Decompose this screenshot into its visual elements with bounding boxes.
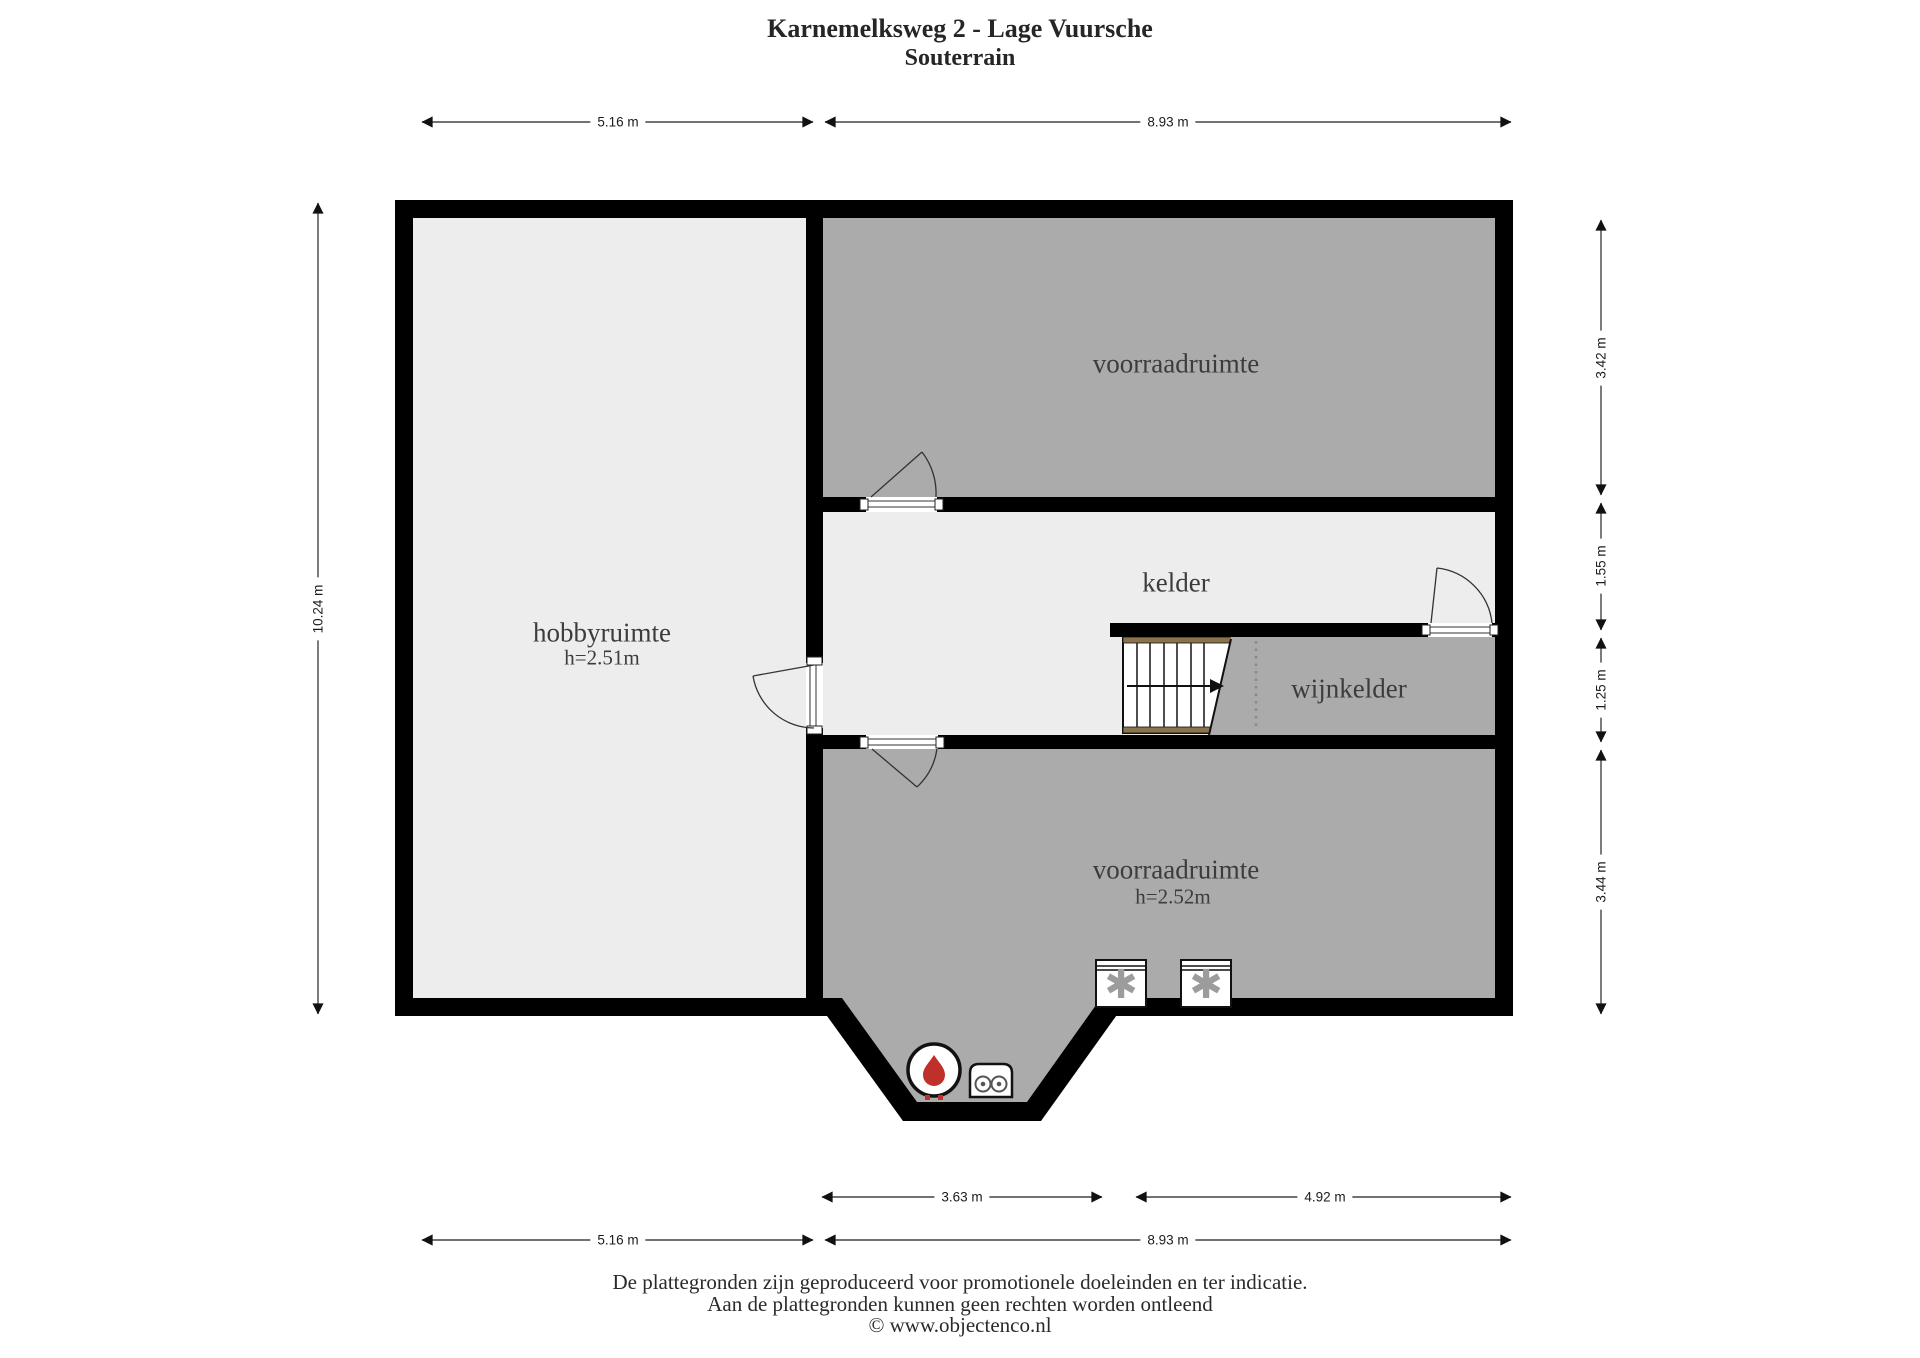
title-block: Karnemelksweg 2 - Lage Vuursche Souterra… (0, 14, 1920, 72)
room-hobbyruimte-floor (413, 218, 806, 998)
dim-right-2: 1.55 m (1593, 538, 1610, 593)
washer-icon: ✱ (1096, 960, 1146, 1008)
dim-left: 10.24 m (310, 578, 327, 641)
room-height-hobbyruimte: h=2.51m (564, 646, 639, 671)
footer-copyright: © www.objectenco.nl (0, 1315, 1920, 1337)
room-label-kelder: kelder (1142, 568, 1209, 599)
ventilation-unit-icon (970, 1064, 1012, 1097)
dim-bottom-outer-left: 5.16 m (590, 1232, 645, 1249)
room-label-voorraadruimte-top: voorraadruimte (1093, 349, 1259, 380)
room-height-voorraadruimte-bottom: h=2.52m (1135, 885, 1210, 910)
dryer-icon: ✱ (1181, 960, 1231, 1008)
svg-text:✱: ✱ (1189, 962, 1223, 1008)
dim-right-3: 1.25 m (1593, 662, 1610, 717)
room-label-voorraadruimte-bottom: voorraadruimte (1093, 855, 1259, 886)
floor-plan-drawing: ✱ ✱ (0, 0, 1920, 1358)
footer-disclaimer: De plattegronden zijn geproduceerd voor … (0, 1272, 1920, 1337)
footer-line-2: Aan de plattegronden kunnen geen rechten… (0, 1294, 1920, 1316)
room-label-hobbyruimte: hobbyruimte (533, 618, 671, 649)
dim-bottom-inner-right: 4.92 m (1297, 1189, 1352, 1206)
floor-plan-page: ✱ ✱ Karnemelksweg 2 - Lage Vuursche Sout… (0, 0, 1920, 1358)
dim-bottom-inner-left: 3.63 m (934, 1189, 989, 1206)
page-title: Karnemelksweg 2 - Lage Vuursche (0, 14, 1920, 44)
dim-right-1: 3.42 m (1593, 330, 1610, 385)
dim-top-right: 8.93 m (1140, 114, 1195, 131)
svg-text:✱: ✱ (1104, 962, 1138, 1008)
footer-line-1: De plattegronden zijn geproduceerd voor … (0, 1272, 1920, 1294)
floor-subtitle: Souterrain (0, 44, 1920, 72)
room-label-wijnkelder: wijnkelder (1291, 674, 1406, 705)
dim-bottom-outer-right: 8.93 m (1140, 1232, 1195, 1249)
dim-top-left: 5.16 m (590, 114, 645, 131)
dim-right-4: 3.44 m (1593, 854, 1610, 909)
